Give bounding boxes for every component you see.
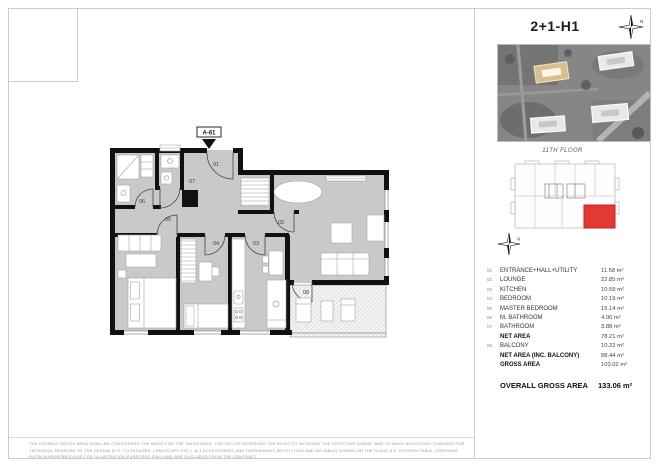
area-table: 01 ENTRANCE+HALL+UTILITY 11.58 m² 02 LOU… xyxy=(487,268,647,371)
area-table-row: NET AREA 78.21 m² xyxy=(487,334,647,343)
overall-area-label: OVERALL GROSS AREA xyxy=(500,381,598,390)
room-name: NET AREA (INC. BALCONY) xyxy=(500,353,601,359)
room-number: 03 xyxy=(487,287,500,292)
north-letter: N xyxy=(517,236,520,241)
keyplan-north-arrow-icon: N xyxy=(497,232,521,256)
unit-title: 2+1-H1 xyxy=(475,18,635,34)
area-table-row: 03 KITCHEN 10.59 m² xyxy=(487,287,647,296)
floor-level-label: 11TH FLOOR xyxy=(475,148,650,154)
room-label-06: 06 xyxy=(139,199,145,205)
area-table-row: NET AREA (INC. BALCONY) 88.44 m² xyxy=(487,353,647,362)
room-label-05: 05 xyxy=(165,217,171,223)
footer-disclaimer: THE OVERALL GROSS AREA SHALL BE CONSIDER… xyxy=(9,437,474,457)
room-name: BEDROOM xyxy=(500,296,601,302)
room-label-04: 04 xyxy=(213,241,219,247)
room-label-01: 01 xyxy=(213,162,219,168)
area-table-row: GROSS AREA 103.02 m² xyxy=(487,362,647,371)
room-area-value: 3.88 m² xyxy=(601,324,647,330)
room-number: 05 xyxy=(487,306,500,311)
floorplan-sheet: { "page": { "title": "2+1-H1", "floor_la… xyxy=(0,0,660,467)
site-aerial-image xyxy=(497,44,651,142)
room-name: LOUNGE xyxy=(500,277,601,283)
room-name: MASTER BEDROOM xyxy=(500,306,601,312)
room-label-02: 02 xyxy=(278,220,284,226)
room-name: BALCONY xyxy=(500,343,601,349)
room-name: GROSS AREA xyxy=(500,362,601,368)
room-area-value: 10.59 m² xyxy=(601,287,647,293)
area-table-row: 07 BATHROOM 3.88 m² xyxy=(487,324,647,333)
area-table-row: 05 MASTER BEDROOM 15.14 m² xyxy=(487,306,647,315)
highlighted-unit xyxy=(584,205,615,228)
room-name: KITCHEN xyxy=(500,287,601,293)
room-area-value: 10.22 m² xyxy=(601,343,647,349)
north-letter: N xyxy=(640,19,643,24)
entrance-arrow-icon xyxy=(202,139,216,149)
room-number: 02 xyxy=(487,277,500,282)
info-panel: 2+1-H1 N xyxy=(475,8,650,457)
area-table-row: 08 BALCONY 10.22 m² xyxy=(487,343,647,352)
area-table-row: 04 BEDROOM 10.19 m² xyxy=(487,296,647,305)
room-area-value: 4.00 m² xyxy=(601,315,647,321)
room-area-value: 88.44 m² xyxy=(601,353,647,359)
room-area-value: 22.85 m² xyxy=(601,277,647,283)
room-area-value: 11.58 m² xyxy=(601,268,647,274)
floor-plan-drawing: A-61 01 07 06 05 02 04 03 08 xyxy=(8,8,474,436)
disclaimer-text: THE OVERALL GROSS AREA SHALL BE CONSIDER… xyxy=(29,441,468,461)
room-number: 07 xyxy=(487,324,500,329)
room-label-08: 08 xyxy=(303,290,309,296)
room-name: NET AREA xyxy=(500,334,601,340)
room-number: 06 xyxy=(487,315,500,320)
overall-area-value: 133.06 m² xyxy=(598,381,647,390)
room-number: 01 xyxy=(487,268,500,273)
area-table-row: 06 M. BATHROOM 4.00 m² xyxy=(487,315,647,324)
room-number: 04 xyxy=(487,296,500,301)
floor-key-plan xyxy=(500,158,645,236)
north-arrow-icon: N xyxy=(618,14,644,40)
room-area-value: 103.02 m² xyxy=(601,362,647,368)
room-area-value: 78.21 m² xyxy=(601,334,647,340)
room-number: 08 xyxy=(487,343,500,348)
room-name: M. BATHROOM xyxy=(500,315,601,321)
unit-marker: A-61 xyxy=(197,127,221,149)
room-area-value: 15.14 m² xyxy=(601,306,647,312)
room-name: ENTRANCE+HALL+UTILITY xyxy=(500,268,601,274)
room-name: BATHROOM xyxy=(500,324,601,330)
overall-area: OVERALL GROSS AREA 133.06 m² xyxy=(487,381,647,390)
room-label-03: 03 xyxy=(253,241,259,247)
room-area-value: 10.19 m² xyxy=(601,296,647,302)
area-table-row: 02 LOUNGE 22.85 m² xyxy=(487,277,647,286)
room-label-07: 07 xyxy=(189,179,195,185)
area-table-row: 01 ENTRANCE+HALL+UTILITY 11.58 m² xyxy=(487,268,647,277)
unit-marker-label: A-61 xyxy=(202,131,216,137)
